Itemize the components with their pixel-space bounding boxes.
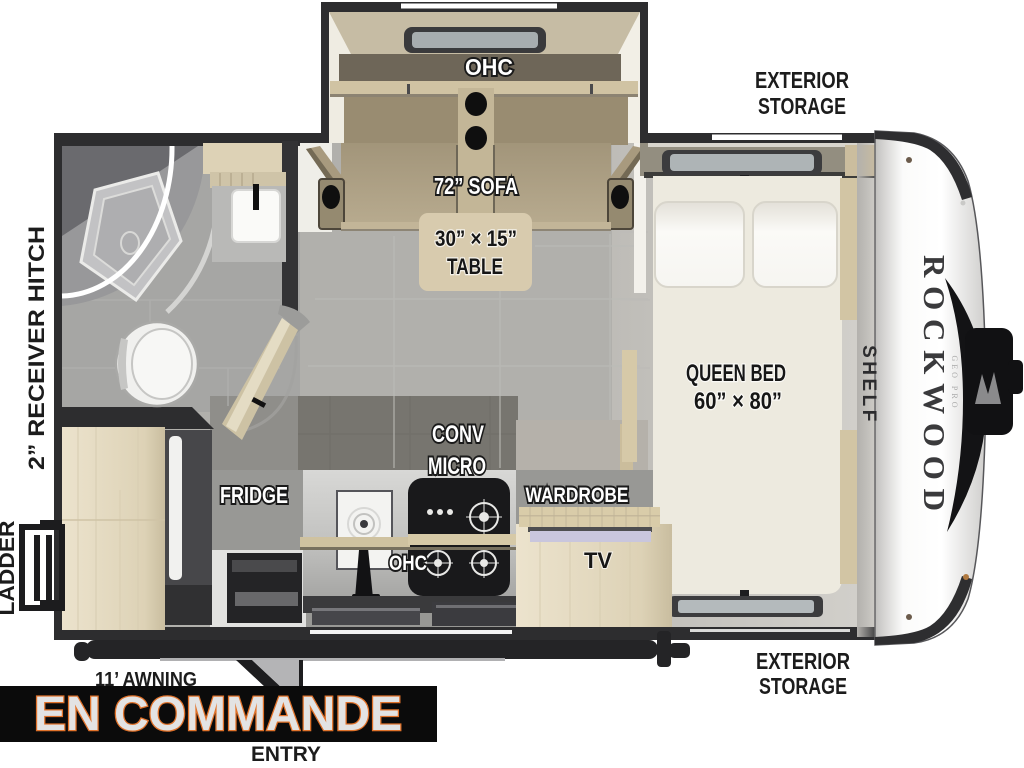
svg-text:QUEEN BED: QUEEN BED [686, 360, 786, 387]
svg-text:WARDROBE: WARDROBE [526, 484, 629, 507]
svg-text:OHC: OHC [389, 552, 427, 575]
svg-text:TV: TV [584, 548, 612, 573]
svg-text:LADDER: LADDER [0, 521, 19, 616]
svg-text:STORAGE: STORAGE [759, 673, 847, 699]
svg-text:STORAGE: STORAGE [758, 93, 846, 119]
svg-text:FRIDGE: FRIDGE [220, 482, 288, 508]
svg-text:72” SOFA: 72” SOFA [434, 173, 518, 199]
svg-text:EXTERIOR: EXTERIOR [755, 67, 849, 93]
svg-text:CONV: CONV [432, 421, 484, 448]
svg-text:GEO PRO: GEO PRO [950, 355, 959, 410]
svg-text:TABLE: TABLE [447, 254, 503, 279]
svg-text:60” × 80”: 60” × 80” [694, 388, 782, 415]
svg-text:MICRO: MICRO [428, 453, 486, 480]
svg-text:30” × 15”: 30” × 15” [435, 226, 517, 251]
svg-text:2” RECEIVER HITCH: 2” RECEIVER HITCH [24, 226, 49, 470]
svg-text:SHELF: SHELF [858, 345, 879, 425]
svg-text:EXTERIOR: EXTERIOR [756, 648, 850, 674]
svg-text:ROCKWOOD: ROCKWOOD [917, 255, 952, 511]
svg-text:EN COMMANDE: EN COMMANDE [34, 688, 402, 741]
svg-text:OHC: OHC [465, 54, 513, 80]
svg-text:ENTRY: ENTRY [251, 743, 321, 766]
